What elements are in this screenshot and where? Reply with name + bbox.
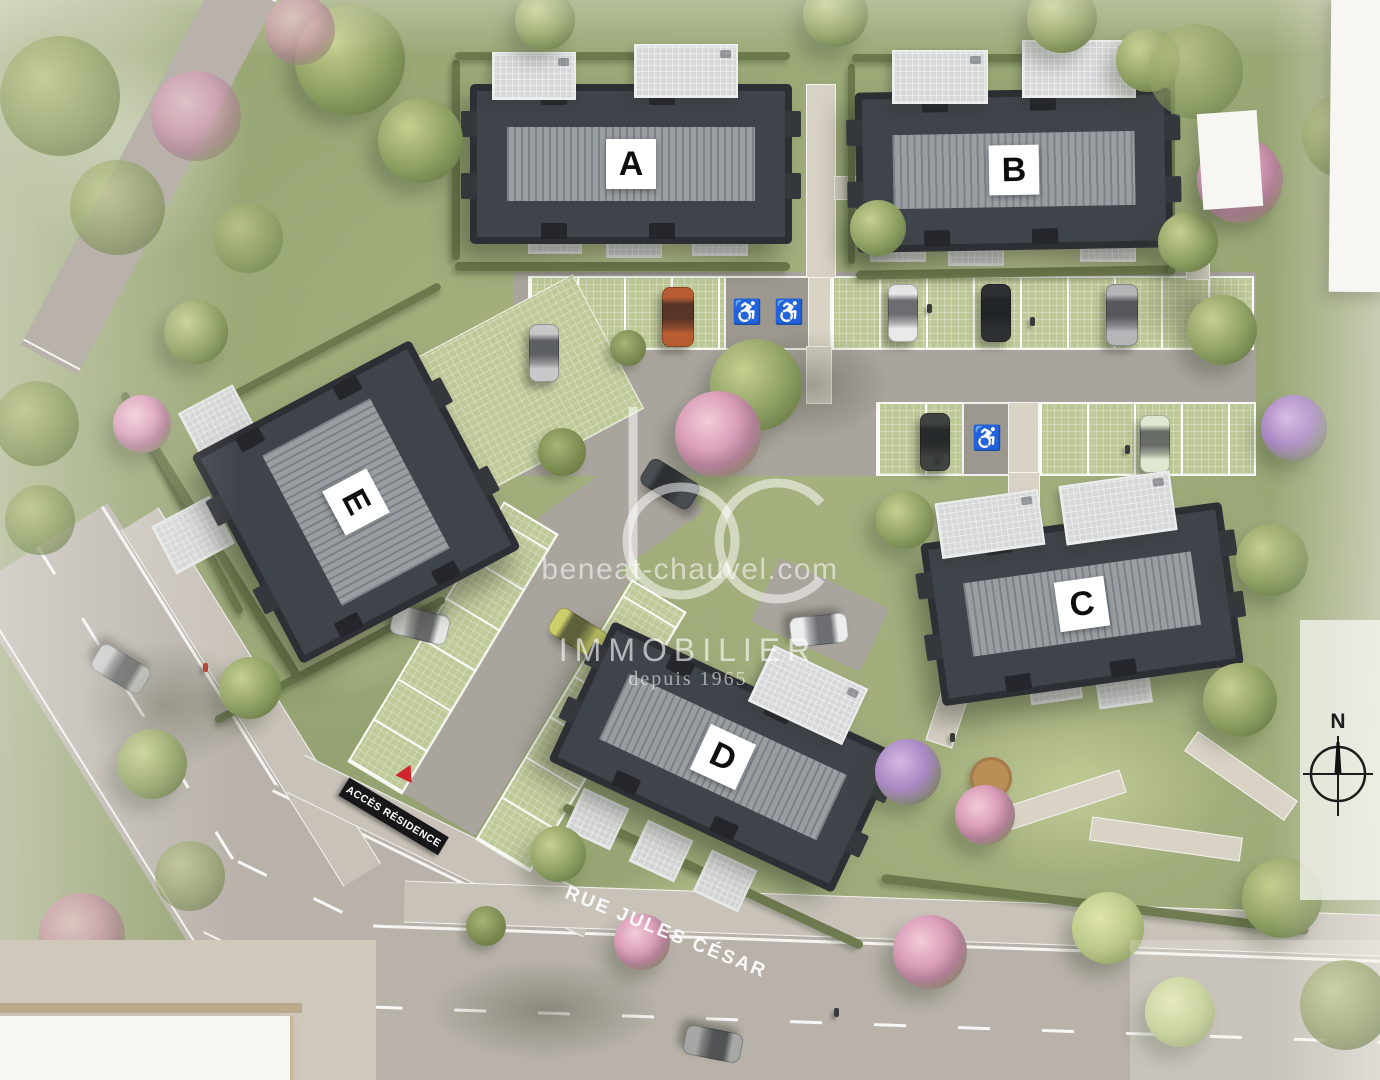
roof-wing [1218,529,1237,557]
car [1140,415,1170,473]
bush [610,330,646,366]
dormer [924,230,950,246]
flowering-tree [1261,395,1327,461]
watermark-tagline: depuis 1965 [628,668,747,691]
tree [155,841,225,911]
site-plan-render: ♿ ♿ ♿ ♿ [0,0,1380,1080]
flowering-tree [955,785,1015,845]
pavement-border [0,1003,302,1013]
tree [1203,663,1277,737]
footpath [806,84,836,278]
bush [538,428,586,476]
hedge [455,262,790,271]
dormer [1004,673,1032,692]
roof-wing [1227,591,1246,619]
handicap-stall: ♿ [962,402,1012,476]
flowering-tree [893,915,967,989]
dormer [1109,658,1137,677]
tree [378,98,463,183]
dormer [709,815,739,840]
tree [5,485,75,555]
compass: N [1300,708,1378,820]
roof-wing [845,829,870,858]
tree [850,200,906,256]
tree [515,0,575,50]
tree [803,0,868,47]
flowering-tree [151,71,241,161]
tree [1148,24,1243,119]
tree [164,300,228,364]
roof-terrace [634,44,738,98]
roof-wing [461,111,477,137]
compass-north-label: N [1330,710,1345,733]
neighbor-building [1329,0,1380,292]
car [529,324,559,382]
flowering-tree [113,395,171,453]
person [950,733,955,742]
bush [466,906,506,946]
tree [1236,524,1308,596]
tree [117,729,187,799]
building-label-c: C [1054,576,1110,632]
car [920,413,950,471]
dormer [649,223,675,239]
building-label-b: B [989,145,1040,196]
roof-wing [924,633,943,661]
roof-wing [1165,176,1181,202]
flowering-tree [875,739,941,805]
footpath [1008,402,1040,474]
tree [1300,960,1380,1050]
building-label-a: A [606,139,656,189]
roof-terrace [892,50,988,104]
handicap-icon: ♿ [732,301,762,325]
tree [876,491,934,549]
neighbor-building [0,1016,293,1080]
roof-terrace [492,52,576,100]
roof-wing [785,173,801,199]
tree [70,160,165,255]
person [1030,317,1035,326]
tree [1242,858,1322,938]
dormer [541,223,567,239]
tree [213,203,283,273]
person [927,304,932,313]
handicap-icon: ♿ [774,301,804,325]
roof-wing [846,120,862,146]
tree [219,657,281,719]
car [981,284,1011,342]
tree-shadow [430,960,660,1060]
dormer [611,770,641,795]
car [662,287,694,347]
tree [530,826,586,882]
building-a: A [470,84,792,244]
watermark-logo [585,403,855,628]
roof-wing [1164,114,1180,140]
tree [0,36,120,156]
dormer [235,426,265,452]
tree [1145,977,1215,1047]
roof-wing [461,173,477,199]
tree [1187,295,1257,365]
tree [1158,212,1218,272]
tree [1072,892,1144,964]
watermark-website: beneat-chauvel.com [541,553,838,587]
tree [0,381,79,466]
person [938,453,943,462]
watermark-brand: IMMOBILIER [559,632,817,669]
roof-wing [785,111,801,137]
car [888,284,918,342]
person [1125,445,1130,454]
person [834,1008,839,1017]
dormer [1032,228,1058,244]
roof-wing [915,572,934,600]
dormer [332,375,362,401]
handicap-icon: ♿ [972,427,1002,451]
neighbor-building [1197,110,1264,210]
